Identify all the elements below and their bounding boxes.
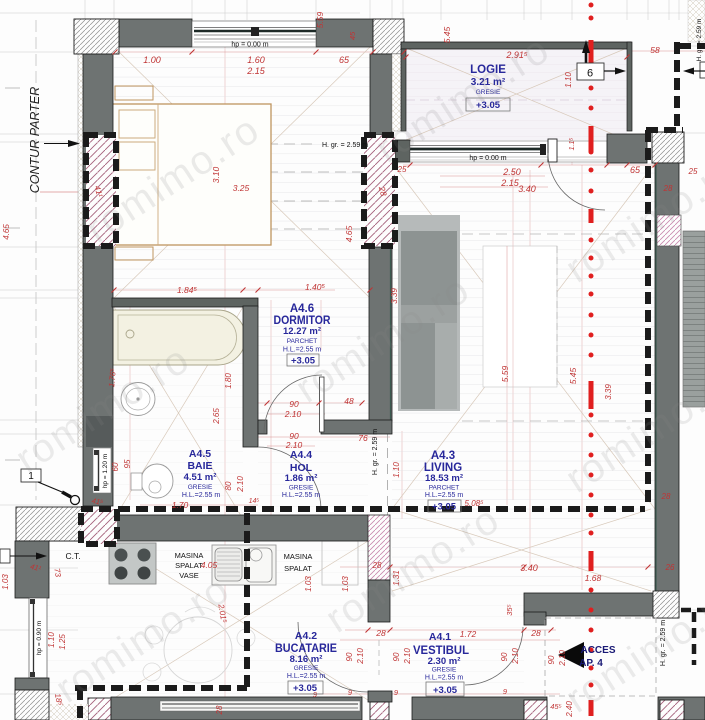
svg-text:hp = 1.20 m: hp = 1.20 m (102, 454, 109, 489)
svg-text:12.27 m²: 12.27 m² (283, 326, 321, 337)
svg-text:A4.5: A4.5 (189, 448, 211, 460)
svg-text:2.15: 2.15 (246, 66, 266, 76)
svg-text:3.25: 3.25 (233, 183, 250, 193)
svg-text:1.84⁵: 1.84⁵ (177, 285, 198, 295)
svg-text:2.10: 2.10 (403, 648, 412, 665)
svg-text:CONTUR PARTER: CONTUR PARTER (28, 87, 42, 194)
svg-text:3.39: 3.39 (390, 288, 399, 304)
svg-text:95: 95 (123, 459, 132, 468)
svg-text:1.68: 1.68 (585, 573, 602, 583)
svg-text:18.53 m²: 18.53 m² (425, 473, 463, 484)
svg-text:4.65: 4.65 (2, 224, 11, 240)
svg-text:BAIE: BAIE (187, 460, 212, 472)
svg-text:+3.05: +3.05 (293, 683, 318, 694)
svg-text:1.70: 1.70 (172, 500, 189, 510)
svg-text:3.40: 3.40 (520, 563, 538, 573)
svg-text:5.45: 5.45 (568, 367, 578, 384)
svg-text:H.L.=2.55 m: H.L.=2.55 m (282, 492, 320, 499)
svg-text:1.60: 1.60 (247, 55, 265, 65)
svg-text:4.51 m²: 4.51 m² (184, 472, 217, 483)
svg-text:2.10: 2.10 (558, 650, 567, 667)
svg-text:2.30 m²: 2.30 m² (428, 656, 461, 667)
svg-text:28: 28 (661, 492, 671, 501)
svg-text:90: 90 (289, 399, 299, 409)
svg-text:H. gr. = 2.59 m: H. gr. = 2.59 m (322, 142, 368, 149)
svg-text:hp = 0.00 m: hp = 0.00 m (231, 42, 268, 49)
svg-text:1.1⁵: 1.1⁵ (569, 138, 576, 151)
svg-text:90: 90 (345, 652, 354, 661)
svg-text:2.65: 2.65 (212, 408, 221, 425)
svg-text:45: 45 (348, 31, 357, 40)
svg-text:2.10: 2.10 (356, 648, 365, 665)
svg-text:8.16 m²: 8.16 m² (290, 654, 323, 665)
svg-text:2.50: 2.50 (502, 167, 521, 177)
svg-text:1.10: 1.10 (47, 632, 56, 648)
svg-text:+3.05: +3.05 (433, 685, 458, 696)
svg-text:PARCHET: PARCHET (287, 338, 318, 345)
svg-text:2.10: 2.10 (284, 409, 302, 419)
svg-text:58: 58 (650, 45, 660, 55)
svg-text:A4.3: A4.3 (431, 450, 455, 462)
svg-text:GRESIE: GRESIE (432, 667, 457, 674)
svg-text:14⁵: 14⁵ (249, 498, 260, 505)
svg-text:MASINA: MASINA (284, 552, 313, 561)
svg-text:1.40⁵: 1.40⁵ (305, 282, 326, 292)
svg-text:H.L.=2.55 m: H.L.=2.55 m (425, 675, 463, 682)
svg-text:1.72: 1.72 (460, 629, 477, 639)
svg-text:5.59: 5.59 (500, 365, 510, 382)
svg-text:A4.1: A4.1 (429, 631, 451, 643)
svg-text:26: 26 (665, 563, 675, 572)
svg-text:PARCHET: PARCHET (429, 485, 460, 492)
svg-text:H.L.=2.55 m: H.L.=2.55 m (287, 673, 325, 680)
svg-text:6: 6 (587, 68, 593, 80)
svg-text:H.L.=2.55 m: H.L.=2.55 m (182, 492, 220, 499)
svg-text:65: 65 (630, 165, 641, 175)
svg-text:28: 28 (530, 628, 541, 638)
svg-text:76: 76 (358, 433, 368, 443)
svg-text:80: 80 (224, 481, 233, 490)
svg-text:2.15: 2.15 (500, 178, 520, 188)
svg-text:60: 60 (111, 462, 120, 471)
svg-text:A4.2: A4.2 (295, 630, 317, 642)
svg-text:H. gr. = 2.59 m: H. gr. = 2.59 m (372, 429, 379, 475)
svg-text:1.03: 1.03 (1, 574, 10, 590)
svg-text:+3.05: +3.05 (432, 502, 457, 513)
svg-text:GRESIE: GRESIE (294, 665, 319, 672)
svg-text:GRESIE: GRESIE (188, 484, 213, 491)
svg-text:1.03: 1.03 (304, 576, 313, 592)
svg-text:SPALAT: SPALAT (284, 564, 312, 573)
svg-text:5.45: 5.45 (442, 26, 452, 43)
svg-text:1.10: 1.10 (392, 462, 401, 478)
svg-text:hp = 0.00 m: hp = 0.00 m (469, 155, 506, 162)
svg-text:5.59: 5.59 (315, 11, 325, 28)
svg-text:4.65: 4.65 (344, 225, 354, 242)
svg-text:2.10: 2.10 (511, 648, 520, 665)
svg-text:90: 90 (547, 655, 556, 664)
svg-text:C.T.: C.T. (65, 551, 80, 561)
svg-text:28: 28 (215, 705, 224, 715)
svg-text:H.L.=2.55 m: H.L.=2.55 m (425, 492, 463, 499)
svg-text:3.39: 3.39 (604, 384, 613, 400)
svg-text:35⁵: 35⁵ (505, 604, 514, 616)
svg-text:H. gr. = 2.59 m: H. gr. = 2.59 m (696, 19, 703, 62)
svg-text:90: 90 (392, 652, 401, 661)
svg-text:H.L.=2.55 m: H.L.=2.55 m (283, 347, 321, 354)
svg-text:2.10: 2.10 (236, 476, 245, 493)
svg-text:MASINA: MASINA (175, 551, 204, 560)
svg-text:SPALAT: SPALAT (175, 561, 203, 570)
svg-text:1.80: 1.80 (224, 373, 233, 389)
svg-text:3.40: 3.40 (518, 184, 536, 194)
svg-text:GRESIE: GRESIE (289, 485, 314, 492)
svg-text:1.86 m²: 1.86 m² (285, 473, 318, 484)
svg-text:A4.6: A4.6 (290, 303, 314, 315)
svg-text:90: 90 (500, 652, 509, 661)
svg-text:A4.4: A4.4 (290, 449, 312, 461)
svg-text:65: 65 (339, 55, 350, 65)
svg-text:45⁵: 45⁵ (550, 702, 562, 711)
svg-text:28: 28 (375, 628, 386, 638)
svg-text:1.25: 1.25 (58, 634, 67, 650)
svg-text:1.00: 1.00 (143, 55, 161, 65)
svg-text:hp = 0.90 m: hp = 0.90 m (36, 621, 43, 656)
svg-text:1.10: 1.10 (564, 72, 573, 88)
svg-text:48: 48 (344, 396, 354, 406)
